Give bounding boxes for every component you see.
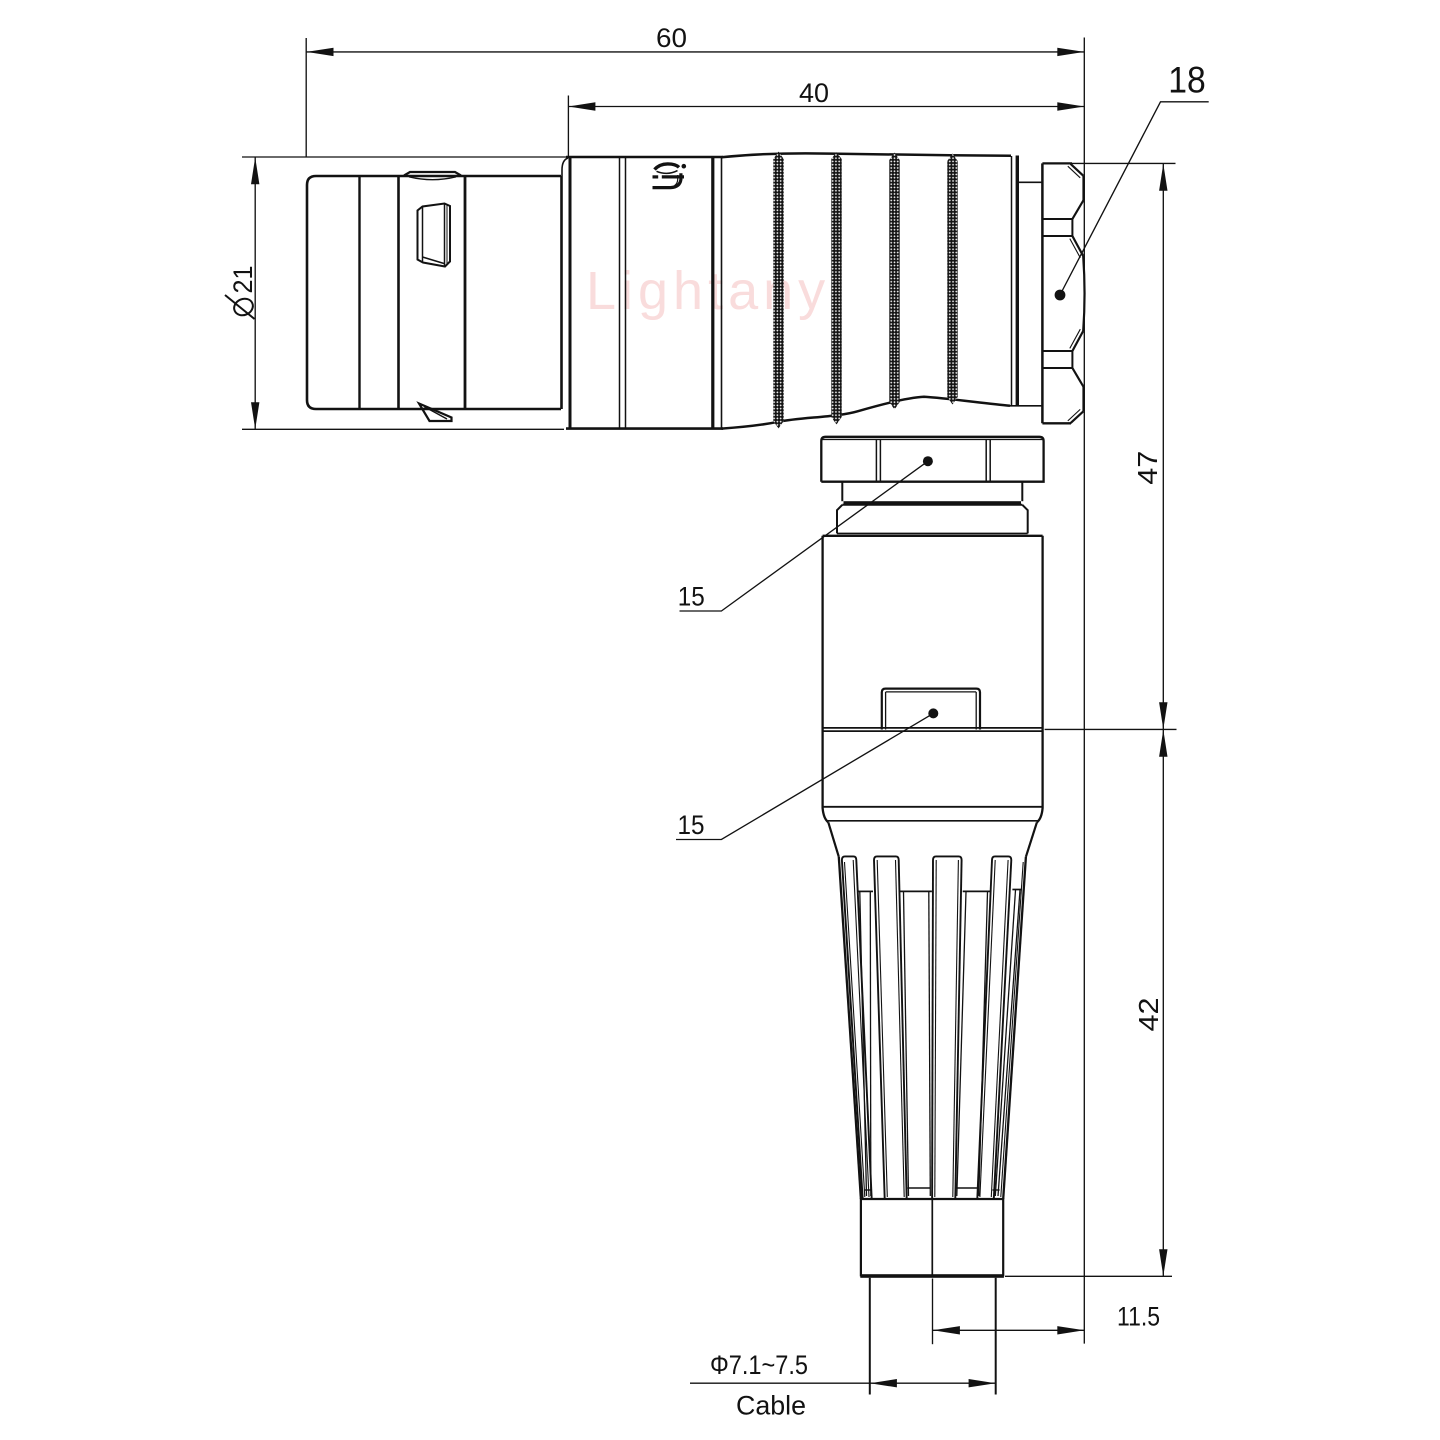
svg-text:15: 15 bbox=[678, 582, 705, 612]
svg-text:21: 21 bbox=[228, 266, 258, 294]
svg-text:Φ7.1~7.5: Φ7.1~7.5 bbox=[710, 1350, 808, 1380]
svg-text:40: 40 bbox=[799, 78, 829, 108]
svg-text:Lightany: Lightany bbox=[586, 261, 830, 321]
svg-text:Cable: Cable bbox=[736, 1391, 806, 1421]
svg-text:18: 18 bbox=[1168, 60, 1206, 101]
svg-text:47: 47 bbox=[1132, 451, 1163, 485]
svg-text:15: 15 bbox=[678, 810, 705, 840]
svg-text:60: 60 bbox=[656, 23, 687, 53]
svg-text:11.5: 11.5 bbox=[1117, 1301, 1160, 1331]
svg-text:42: 42 bbox=[1133, 998, 1164, 1032]
